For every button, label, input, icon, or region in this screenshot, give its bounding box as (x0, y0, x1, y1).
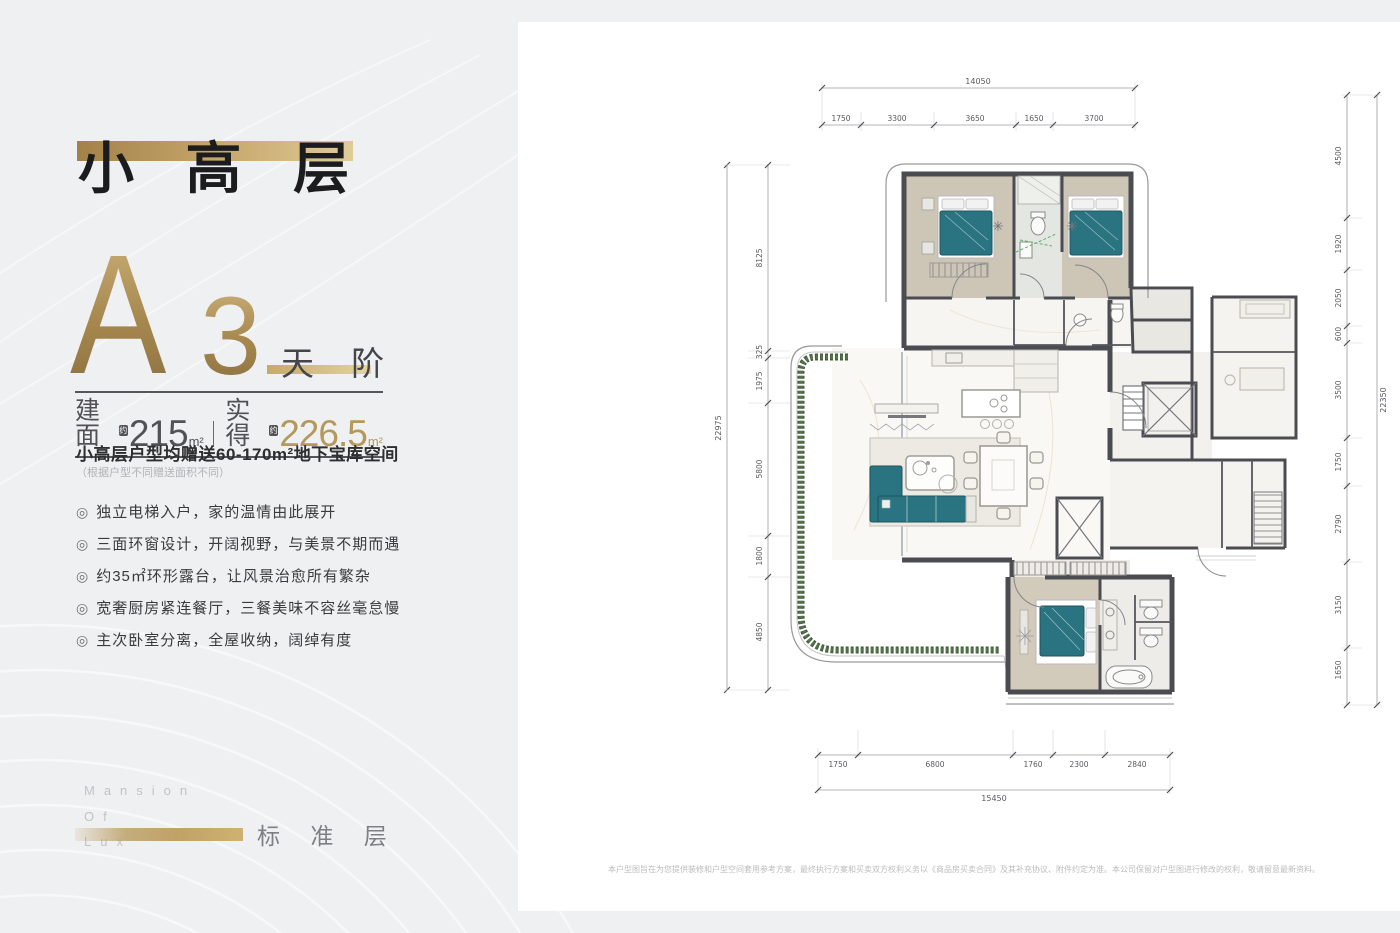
feature-text: 主次卧室分离，全屋收纳，阔绰有度 (96, 630, 352, 651)
dim-label: 2300 (1069, 760, 1088, 769)
feature-item: ◎宽奢厨房紧连餐厅，三餐美味不容丝毫怠慢 (76, 598, 400, 619)
gift-line: 小高层户型均赠送60-170m²地下宝库空间 (76, 440, 399, 465)
feature-item: ◎独立电梯入户，家的温情由此展开 (76, 502, 400, 523)
gift-note: （根据户型不同赠送面积不同） (76, 464, 230, 480)
dim-label: 2790 (1334, 514, 1343, 533)
dim-label: 1750 (831, 114, 850, 123)
unit-suffix: 天 阶 (281, 337, 398, 385)
dimension-bottom: 1750 6800 1760 2300 2840 15450 (815, 730, 1173, 803)
dim-label: 2050 (1334, 288, 1343, 307)
dim-label: 5800 (755, 459, 764, 478)
dim-label: 1800 (755, 546, 764, 565)
feature-text: 宽奢厨房紧连餐厅，三餐美味不容丝毫怠慢 (96, 598, 400, 619)
bullet-icon: ◎ (76, 598, 89, 619)
dim-label: 1920 (1334, 234, 1343, 253)
dim-label: 4500 (1334, 146, 1343, 165)
unit-letter: A (70, 230, 166, 400)
dim-label: 600 (1334, 327, 1343, 342)
dim-label: 3300 (887, 114, 906, 123)
bedroom-right-furniture (1068, 196, 1124, 258)
dim-label: 1760 (1023, 760, 1042, 769)
dim-label: 6800 (925, 760, 944, 769)
feature-list: ◎独立电梯入户，家的温情由此展开 ◎三面环窗设计，开阔视野，与美景不期而遇 ◎约… (76, 502, 400, 662)
bullet-icon: ◎ (76, 534, 89, 555)
disclaimer-text: 本户型图旨在为您提供装修和户型空间套用参考方案，最终执行方案和买卖双方权利义务以… (608, 864, 1388, 875)
feature-text: 独立电梯入户，家的温情由此展开 (96, 502, 336, 523)
dim-label: 14050 (965, 77, 990, 86)
feature-item: ◎三面环窗设计，开阔视野，与美景不期而遇 (76, 534, 400, 555)
approx-badge: 约 (119, 425, 128, 436)
dim-label: 4850 (755, 622, 764, 641)
dim-label: 8125 (755, 248, 764, 267)
dim-label: 1975 (755, 371, 764, 390)
dim-label: 3150 (1334, 595, 1343, 614)
dim-label: 3700 (1084, 114, 1103, 123)
dim-label: 1650 (1334, 660, 1343, 679)
watermark-gold-bar (75, 828, 243, 841)
page: 小 高 层 A 3 天 阶 建面 约 215 m² 实得 约 226.5 m² … (0, 0, 1400, 933)
feature-item: ◎约35㎡环形露台，让风景治愈所有繁杂 (76, 566, 400, 587)
dim-label: 325 (755, 345, 764, 360)
floor-plan: 14050 1750 3300 3650 1650 3700 1750 6800… (700, 55, 1400, 825)
feature-item: ◎主次卧室分离，全屋收纳，阔绰有度 (76, 630, 400, 651)
master-bedroom-furniture (1016, 600, 1096, 664)
page-title: 小 高 层 (78, 124, 367, 205)
dim-label: 2840 (1127, 760, 1146, 769)
dim-label: 1750 (1334, 452, 1343, 471)
dimension-left: 22975 8125 325 1975 5800 1800 4850 (714, 162, 790, 693)
feature-text: 约35㎡环形露台，让风景治愈所有繁杂 (96, 566, 371, 587)
bullet-icon: ◎ (76, 630, 89, 651)
dimension-top: 14050 1750 3300 3650 1650 3700 (819, 77, 1138, 131)
dimension-right: 4500 1920 2050 600 3500 1750 2790 3150 1… (1334, 92, 1388, 708)
unit-number: 3 (200, 282, 261, 392)
bullet-icon: ◎ (76, 502, 89, 523)
dim-label: 1750 (828, 760, 847, 769)
dim-label: 22975 (714, 415, 723, 440)
dim-label: 15450 (981, 794, 1006, 803)
feature-text: 三面环窗设计，开阔视野，与美景不期而遇 (96, 534, 400, 555)
dim-label: 22350 (1379, 387, 1388, 412)
dim-label: 3650 (965, 114, 984, 123)
approx-badge: 约 (269, 425, 278, 436)
dim-label: 3500 (1334, 380, 1343, 399)
watermark-line: Mansion (84, 783, 196, 798)
dim-label: 1650 (1024, 114, 1043, 123)
watermark-line: Of (84, 809, 116, 824)
floor-type-label: 标 准 层 (257, 817, 399, 851)
bullet-icon: ◎ (76, 566, 89, 587)
